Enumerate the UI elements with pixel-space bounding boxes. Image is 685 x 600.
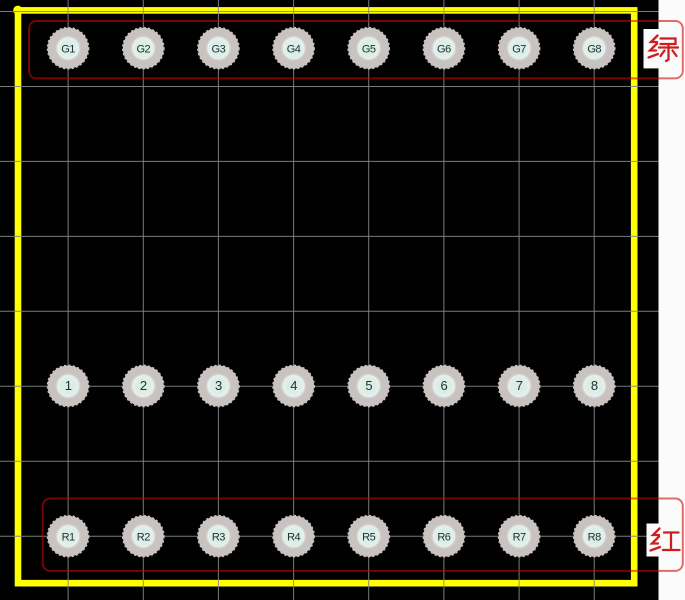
svg-text:R1: R1 xyxy=(62,531,75,543)
svg-text:8: 8 xyxy=(591,378,598,393)
svg-text:R7: R7 xyxy=(513,531,526,543)
svg-text:5: 5 xyxy=(365,378,372,393)
svg-text:G6: G6 xyxy=(437,43,451,55)
svg-text:R8: R8 xyxy=(588,531,601,543)
svg-text:2: 2 xyxy=(140,378,147,393)
svg-text:3: 3 xyxy=(215,378,222,393)
svg-text:7: 7 xyxy=(516,378,523,393)
svg-text:G2: G2 xyxy=(136,43,150,55)
svg-text:1: 1 xyxy=(65,378,72,393)
svg-text:R3: R3 xyxy=(212,531,225,543)
svg-text:R2: R2 xyxy=(137,531,150,543)
svg-text:4: 4 xyxy=(290,378,297,393)
svg-text:R6: R6 xyxy=(437,531,450,543)
svg-text:R4: R4 xyxy=(287,531,300,543)
svg-text:G8: G8 xyxy=(587,43,601,55)
svg-text:G5: G5 xyxy=(362,43,376,55)
svg-text:G1: G1 xyxy=(61,43,75,55)
svg-text:G3: G3 xyxy=(212,43,226,55)
svg-text:G7: G7 xyxy=(512,43,526,55)
svg-text:R5: R5 xyxy=(362,531,375,543)
svg-text:G4: G4 xyxy=(287,43,301,55)
svg-text:6: 6 xyxy=(441,378,448,393)
